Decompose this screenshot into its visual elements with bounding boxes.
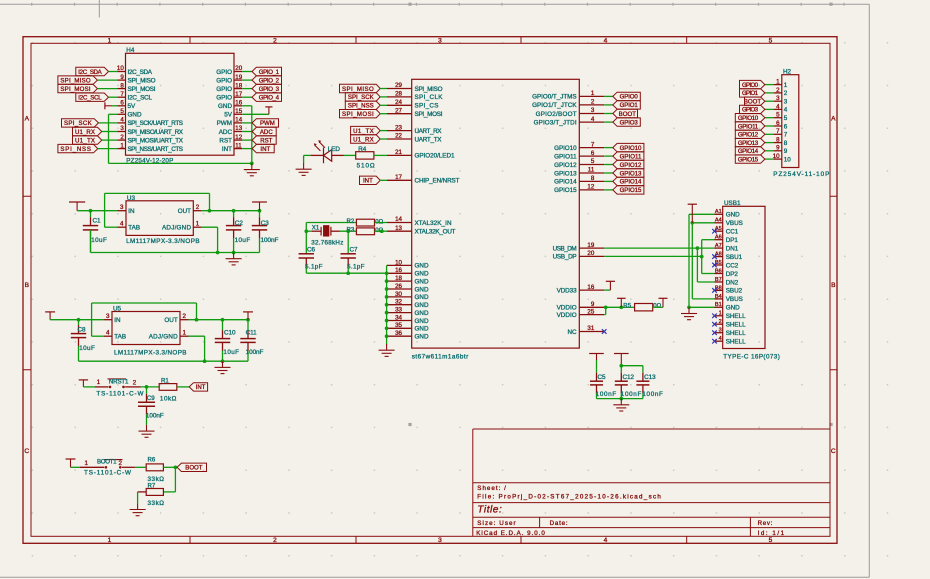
svg-text:GPIO3: GPIO3 [620, 119, 639, 126]
svg-text:15: 15 [235, 108, 242, 115]
svg-text:5: 5 [776, 112, 780, 119]
svg-text:GPIO3: GPIO3 [742, 107, 759, 114]
svg-text:GPIO13: GPIO13 [738, 140, 759, 147]
svg-text:GPIO11: GPIO11 [620, 153, 642, 160]
svg-text:GND: GND [415, 326, 429, 333]
svg-text:R4: R4 [358, 146, 367, 153]
svg-text:4: 4 [106, 330, 110, 337]
svg-text:10uF: 10uF [79, 345, 95, 352]
svg-text:14: 14 [235, 117, 242, 124]
svg-text:SPI_SCK: SPI_SCK [64, 120, 92, 127]
svg-text:R5: R5 [623, 302, 631, 309]
svg-text:GND: GND [415, 334, 429, 341]
svg-text:10uF: 10uF [235, 237, 251, 244]
svg-text:TS-1101-C-W: TS-1101-C-W [96, 390, 143, 397]
svg-text:GPIO: GPIO [216, 86, 232, 93]
svg-text:C: C [831, 448, 836, 455]
svg-text:1: 1 [97, 379, 101, 386]
svg-text:R2: R2 [347, 218, 355, 225]
svg-text:H4: H4 [126, 47, 135, 54]
svg-text:1: 1 [591, 90, 595, 97]
svg-text:GND: GND [415, 294, 429, 301]
svg-text:25: 25 [587, 308, 594, 315]
svg-text:SHELL: SHELL [726, 330, 746, 337]
svg-text:SPI_CS: SPI_CS [415, 103, 439, 110]
svg-text:DP1: DP1 [726, 237, 739, 244]
svg-text:3: 3 [784, 99, 788, 106]
svg-text:U5: U5 [113, 305, 122, 312]
svg-text:1: 1 [776, 79, 780, 86]
svg-text:8: 8 [591, 175, 595, 182]
svg-text:GPIO20/LED1: GPIO20/LED1 [415, 153, 455, 160]
svg-text:1: 1 [108, 537, 112, 544]
svg-text:GND: GND [415, 318, 429, 325]
svg-text:INT: INT [363, 178, 373, 185]
svg-text:0Ω: 0Ω [653, 302, 661, 309]
svg-text:GND: GND [218, 103, 232, 110]
svg-text:10uF: 10uF [223, 349, 239, 356]
svg-text:TS-1101-C-W: TS-1101-C-W [84, 470, 131, 477]
svg-text:6: 6 [776, 120, 780, 127]
svg-text:GND: GND [415, 271, 429, 278]
svg-text:31: 31 [587, 325, 594, 332]
svg-text:H2: H2 [783, 68, 792, 75]
svg-text:GPIO1: GPIO1 [742, 90, 759, 97]
svg-text:GPIO: GPIO [216, 95, 232, 102]
svg-text:7: 7 [120, 91, 124, 98]
svg-text:16: 16 [395, 267, 402, 274]
svg-text:19: 19 [235, 74, 242, 81]
svg-text:7: 7 [591, 141, 595, 148]
svg-text:SPI_MISO/UART_RX: SPI_MISO/UART_RX [128, 129, 184, 136]
svg-text:GPIO: GPIO [216, 69, 232, 76]
svg-text:BOOT1: BOOT1 [97, 459, 117, 466]
svg-text:DN1: DN1 [726, 245, 739, 252]
svg-text:C12: C12 [623, 374, 635, 381]
svg-text:18: 18 [235, 82, 242, 89]
svg-text:C7: C7 [350, 247, 359, 254]
svg-text:A7: A7 [715, 243, 722, 249]
svg-text:UART_RX: UART_RX [415, 128, 443, 135]
svg-text:BOOT: BOOT [619, 111, 637, 118]
svg-text:I2C_SDA: I2C_SDA [128, 69, 153, 76]
svg-text:17: 17 [395, 174, 402, 181]
svg-text:GPIO0/T_JTMS: GPIO0/T_JTMS [532, 94, 577, 101]
svg-text:C3: C3 [261, 220, 270, 227]
svg-text:2: 2 [133, 379, 137, 386]
svg-text:35: 35 [395, 322, 402, 329]
svg-text:1: 1 [196, 221, 200, 228]
svg-text:28: 28 [395, 91, 402, 98]
svg-text:18: 18 [395, 275, 402, 282]
svg-text:3: 3 [719, 328, 722, 334]
svg-text:16: 16 [235, 100, 242, 107]
svg-text:GPIO15: GPIO15 [738, 156, 759, 163]
svg-text:SPI_MOSI: SPI_MOSI [342, 111, 374, 118]
svg-text:3: 3 [438, 37, 442, 44]
svg-text:GPIO15: GPIO15 [620, 187, 642, 194]
svg-text:GPIO10: GPIO10 [554, 145, 577, 152]
svg-text:Title:: Title: [477, 505, 502, 516]
svg-text:3: 3 [776, 95, 780, 102]
svg-text:I2C_SCL: I2C_SCL [78, 95, 102, 102]
svg-text:9: 9 [591, 301, 595, 308]
svg-text:TYPE-C 16P(073): TYPE-C 16P(073) [723, 354, 780, 361]
svg-text:IN: IN [128, 208, 135, 215]
svg-text:10: 10 [784, 156, 792, 163]
svg-text:ADC: ADC [219, 129, 233, 136]
svg-text:Rev:: Rev: [758, 520, 773, 527]
svg-text:IN: IN [114, 317, 121, 324]
svg-text:23: 23 [395, 124, 402, 131]
svg-text:2: 2 [784, 90, 788, 97]
svg-text:CC1: CC1 [726, 229, 739, 236]
svg-text:R1: R1 [161, 377, 169, 384]
svg-text:5V: 5V [224, 112, 233, 119]
svg-text:3: 3 [106, 313, 110, 320]
svg-text:PZ254V-11-10P: PZ254V-11-10P [773, 171, 829, 178]
svg-text:1: 1 [108, 37, 112, 44]
svg-text:NRST1: NRST1 [109, 379, 129, 386]
svg-text:34: 34 [395, 314, 402, 321]
svg-text:SPI_MISO: SPI_MISO [128, 77, 156, 84]
svg-text:SHELL: SHELL [726, 313, 746, 320]
svg-text:12: 12 [235, 134, 242, 141]
svg-text:100nF: 100nF [246, 349, 264, 356]
svg-text:SPI_MOSI: SPI_MOSI [128, 86, 156, 93]
svg-text:1: 1 [719, 311, 722, 317]
svg-text:C6: C6 [307, 247, 316, 254]
svg-text:4: 4 [604, 537, 608, 544]
svg-text:ADJ/GND: ADJ/GND [162, 225, 191, 232]
svg-text:1: 1 [784, 82, 788, 89]
svg-text:SPI_MOSI: SPI_MOSI [415, 111, 443, 118]
svg-text:A6: A6 [715, 235, 722, 241]
svg-text:U1_TX: U1_TX [353, 128, 374, 135]
svg-text:9: 9 [120, 74, 124, 81]
svg-text:6: 6 [784, 123, 788, 130]
svg-text:SPI_NSS: SPI_NSS [60, 146, 91, 153]
svg-text:B: B [25, 282, 30, 289]
svg-text:VBUS: VBUS [726, 296, 743, 303]
svg-text:14: 14 [395, 216, 402, 223]
svg-text:A: A [25, 116, 30, 123]
svg-text:USB_DM: USB_DM [553, 245, 577, 252]
svg-text:SBU1: SBU1 [726, 254, 743, 261]
svg-text:5: 5 [769, 37, 773, 44]
svg-text:USB_DP: USB_DP [553, 254, 577, 261]
svg-text:TAB: TAB [128, 225, 140, 232]
svg-text:OUT: OUT [164, 317, 177, 324]
svg-text:C9: C9 [147, 395, 155, 402]
svg-text:2: 2 [719, 319, 722, 325]
svg-text:U1_TX: U1_TX [75, 137, 95, 144]
svg-text:1: 1 [183, 330, 187, 337]
svg-text:GPIO11: GPIO11 [554, 153, 577, 160]
svg-text:B4: B4 [715, 294, 722, 300]
svg-text:GND: GND [726, 305, 740, 312]
svg-text:GPIO0: GPIO0 [620, 94, 639, 101]
svg-text:26: 26 [395, 283, 402, 290]
svg-text:PWM: PWM [217, 120, 232, 127]
svg-text:A: A [831, 116, 836, 123]
svg-text:GPIO_2: GPIO_2 [259, 77, 280, 84]
svg-text:2: 2 [183, 313, 187, 320]
svg-text:21: 21 [395, 149, 402, 156]
svg-text:3: 3 [438, 537, 442, 544]
svg-text:2: 2 [273, 37, 277, 44]
svg-text:C10: C10 [224, 330, 236, 337]
svg-text:4: 4 [120, 221, 124, 228]
svg-text:GPIO10: GPIO10 [738, 115, 759, 122]
svg-text:GND: GND [415, 310, 429, 317]
svg-text:13: 13 [395, 225, 402, 232]
svg-text:9: 9 [784, 148, 788, 155]
svg-text:UART_TX: UART_TX [415, 136, 443, 143]
svg-text:GND: GND [726, 212, 740, 219]
svg-text:5.1pF: 5.1pF [305, 264, 323, 271]
svg-text:16: 16 [587, 284, 594, 291]
svg-text:C2: C2 [235, 220, 244, 227]
svg-text:SPI_SCK: SPI_SCK [348, 94, 374, 101]
svg-text:32: 32 [395, 299, 402, 306]
svg-text:4: 4 [784, 107, 788, 114]
svg-text:9: 9 [776, 145, 780, 152]
svg-text:SPI_MISO: SPI_MISO [342, 86, 374, 93]
svg-text:GPIO1/T_JTCK: GPIO1/T_JTCK [532, 102, 577, 109]
svg-text:20: 20 [587, 250, 594, 257]
svg-text:SPI_CLK: SPI_CLK [415, 94, 444, 101]
svg-text:GPIO0: GPIO0 [742, 82, 759, 89]
svg-text:2: 2 [196, 204, 200, 211]
svg-text:2: 2 [776, 87, 780, 94]
svg-text:20: 20 [235, 65, 242, 72]
svg-text:24: 24 [395, 99, 402, 106]
svg-text:GND: GND [415, 278, 429, 285]
svg-text:Date:: Date: [550, 520, 568, 527]
svg-text:6: 6 [591, 150, 595, 157]
svg-text:1: 1 [85, 460, 89, 467]
svg-text:C5: C5 [598, 374, 607, 381]
svg-text:GPIO2/BOOT: GPIO2/BOOT [536, 111, 577, 118]
svg-text:U3: U3 [127, 195, 136, 202]
svg-text:27: 27 [395, 107, 402, 114]
svg-text:7: 7 [784, 132, 788, 139]
svg-text:GPIO_4: GPIO_4 [259, 95, 280, 102]
svg-text:B7: B7 [715, 277, 722, 283]
svg-text:1: 1 [120, 142, 124, 149]
svg-text:GPIO_1: GPIO_1 [259, 69, 280, 76]
svg-text:7: 7 [776, 128, 780, 135]
svg-text:GND: GND [128, 112, 142, 119]
svg-text:SPI_MOSI: SPI_MOSI [60, 86, 90, 93]
svg-text:CC2: CC2 [726, 262, 739, 269]
svg-text:3: 3 [120, 204, 124, 211]
svg-text:8: 8 [784, 140, 788, 147]
svg-text:VDDIO: VDDIO [557, 312, 577, 319]
svg-text:I2C_SCL: I2C_SCL [128, 95, 153, 102]
svg-text:INT: INT [222, 146, 232, 153]
svg-text:5: 5 [591, 158, 595, 165]
svg-text:GPIO13: GPIO13 [554, 170, 577, 177]
svg-text:VBUS: VBUS [726, 220, 743, 227]
svg-text:8: 8 [120, 82, 124, 89]
svg-text:GND: GND [415, 302, 429, 309]
svg-text:CHIP_EN/NRST: CHIP_EN/NRST [415, 178, 460, 185]
svg-text:NC: NC [567, 329, 577, 336]
svg-text:GPIO15: GPIO15 [554, 187, 577, 194]
svg-text:3: 3 [591, 107, 595, 114]
svg-text:2: 2 [120, 134, 124, 141]
svg-text:ADJ/GND: ADJ/GND [149, 334, 178, 341]
svg-text:X1: X1 [312, 224, 320, 231]
svg-text:6: 6 [120, 100, 124, 107]
svg-text:VDDIO: VDDIO [557, 305, 577, 312]
svg-text:SPI_NSS: SPI_NSS [348, 103, 374, 110]
svg-text:2: 2 [591, 99, 595, 106]
svg-text:10kΩ: 10kΩ [160, 396, 177, 403]
svg-text:B1: B1 [715, 302, 722, 308]
svg-text:11: 11 [235, 142, 242, 149]
svg-text:29: 29 [395, 82, 402, 89]
svg-text:I2C_SDA: I2C_SDA [78, 69, 102, 76]
svg-text:USB1: USB1 [724, 200, 741, 207]
svg-text:B: B [831, 282, 836, 289]
svg-text:SBU2: SBU2 [726, 288, 743, 295]
svg-text:5: 5 [784, 115, 788, 122]
svg-text:INT: INT [196, 384, 206, 391]
svg-text:BOOT: BOOT [185, 465, 203, 472]
svg-text:U1_RX: U1_RX [75, 129, 95, 136]
svg-text:R7: R7 [148, 482, 156, 489]
svg-text:RST: RST [260, 137, 272, 144]
svg-text:SHELL: SHELL [726, 339, 746, 346]
svg-text:PWM: PWM [260, 120, 275, 127]
svg-text:4: 4 [591, 116, 595, 123]
svg-text:XTAL32K_OUT: XTAL32K_OUT [415, 229, 456, 236]
svg-text:10: 10 [117, 65, 124, 72]
svg-text:33kΩ: 33kΩ [148, 500, 165, 507]
svg-text:SPI_SCK/UART_RTS: SPI_SCK/UART_RTS [128, 120, 184, 127]
svg-text:4: 4 [120, 117, 124, 124]
svg-text:U1_RX: U1_RX [353, 136, 374, 143]
svg-text:100nF: 100nF [621, 391, 642, 398]
svg-text:5: 5 [769, 537, 773, 544]
svg-text:SHELL: SHELL [726, 322, 746, 329]
svg-text:st67w611m1a6btr: st67w611m1a6btr [412, 354, 469, 361]
svg-text:36: 36 [395, 330, 402, 337]
svg-text:13: 13 [235, 125, 242, 132]
svg-text:Size: User: Size: User [477, 520, 515, 527]
svg-text:XTAL32K_IN: XTAL32K_IN [415, 220, 452, 227]
svg-text:22: 22 [395, 133, 402, 140]
svg-text:DP2: DP2 [726, 271, 739, 278]
svg-text:R6: R6 [148, 456, 156, 463]
svg-text:5.1pF: 5.1pF [347, 264, 365, 271]
svg-text:BOOT: BOOT [744, 99, 762, 106]
svg-text:5: 5 [120, 108, 124, 115]
svg-text:GND: GND [415, 263, 429, 270]
svg-text:2: 2 [119, 460, 123, 467]
svg-text:C13: C13 [644, 374, 656, 381]
svg-text:2: 2 [273, 537, 277, 544]
svg-text:SPI_MOSI/UART_TX: SPI_MOSI/UART_TX [128, 137, 184, 144]
svg-text:OUT: OUT [178, 208, 191, 215]
svg-text:GPIO14: GPIO14 [738, 148, 759, 155]
svg-text:GPIO13: GPIO13 [620, 170, 642, 177]
svg-text:C: C [24, 448, 29, 455]
svg-text:SPI_MISO: SPI_MISO [60, 77, 90, 84]
svg-text:GPIO: GPIO [216, 77, 232, 84]
svg-text:4: 4 [776, 103, 780, 110]
svg-text:100nF: 100nF [642, 391, 663, 398]
svg-text:A1: A1 [715, 209, 722, 215]
svg-text:C8: C8 [78, 327, 87, 334]
svg-text:4: 4 [719, 336, 722, 342]
svg-text:10uF: 10uF [91, 237, 107, 244]
svg-text:B6: B6 [715, 268, 722, 274]
svg-text:GPIO14: GPIO14 [554, 179, 577, 186]
svg-text:19: 19 [587, 242, 594, 249]
svg-text:GPIO14: GPIO14 [620, 179, 642, 186]
svg-text:GPIO12: GPIO12 [738, 132, 759, 139]
svg-text:GPIO12: GPIO12 [620, 162, 642, 169]
svg-text:LED: LED [328, 146, 341, 153]
svg-text:12: 12 [587, 184, 594, 191]
svg-text:LM1117MPX-3.3/NOPB: LM1117MPX-3.3/NOPB [114, 350, 187, 357]
svg-text:LM1117MPX-3.3/NOPB: LM1117MPX-3.3/NOPB [126, 238, 200, 245]
svg-text:17: 17 [235, 91, 242, 98]
svg-text:4: 4 [604, 37, 608, 44]
svg-text:100nF: 100nF [596, 391, 617, 398]
svg-text:GPIO1: GPIO1 [620, 102, 639, 109]
svg-text:Sheet: /: Sheet: / [477, 485, 506, 492]
svg-text:VDD33: VDD33 [557, 287, 577, 294]
svg-text:SPI_MISO: SPI_MISO [415, 86, 443, 93]
svg-text:GPIO_3: GPIO_3 [259, 86, 280, 93]
svg-text:GPIO11: GPIO11 [738, 123, 759, 130]
svg-text:0Ω: 0Ω [375, 218, 383, 225]
svg-text:11: 11 [588, 167, 595, 174]
svg-text:510Ω: 510Ω [357, 163, 375, 170]
svg-text:ADC: ADC [260, 129, 273, 136]
svg-text:INT: INT [260, 146, 270, 153]
svg-text:C1: C1 [93, 217, 102, 224]
svg-text:RST: RST [219, 137, 232, 144]
svg-text:GPIO3/T_JTDI: GPIO3/T_JTDI [534, 119, 577, 126]
svg-text:DN2: DN2 [726, 279, 739, 286]
svg-text:GPIO12: GPIO12 [554, 162, 577, 169]
svg-text:SPI_NSS/UART_CTS: SPI_NSS/UART_CTS [128, 146, 184, 153]
svg-text:8: 8 [776, 137, 780, 144]
svg-text:GPIO10: GPIO10 [620, 145, 642, 152]
svg-text:A4: A4 [715, 218, 722, 224]
svg-text:KiCad E.D.A. 9.0.0: KiCad E.D.A. 9.0.0 [476, 530, 545, 537]
svg-text:TAB: TAB [114, 334, 126, 341]
svg-text:32.768kHz: 32.768kHz [311, 239, 343, 246]
svg-text:100nF: 100nF [261, 237, 279, 244]
svg-text:3: 3 [120, 125, 124, 132]
svg-text:33: 33 [395, 307, 402, 314]
svg-text:100nF: 100nF [146, 412, 164, 419]
svg-text:30: 30 [395, 291, 402, 298]
svg-text:GND: GND [415, 286, 429, 293]
svg-text:C11: C11 [246, 330, 258, 337]
svg-text:5V: 5V [128, 103, 137, 110]
svg-text:10: 10 [395, 259, 402, 266]
